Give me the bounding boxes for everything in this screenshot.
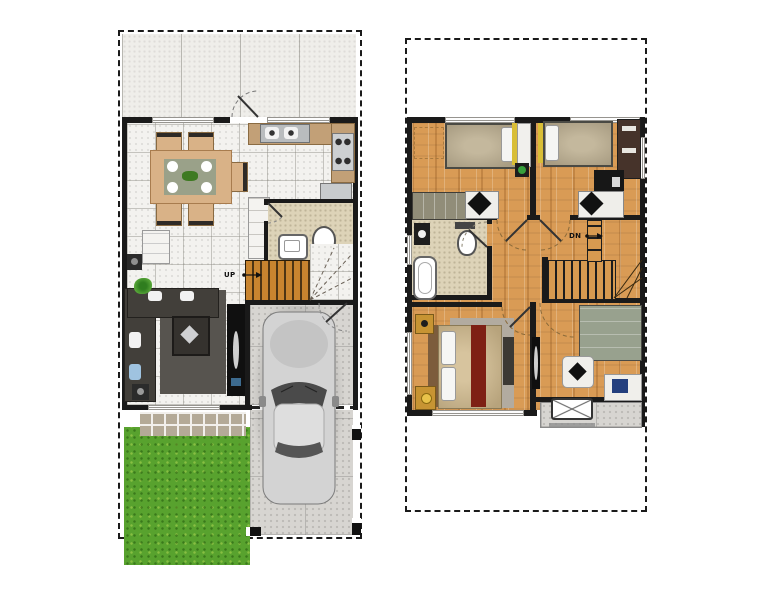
family-desk xyxy=(604,374,642,401)
speaker-bedroom1 xyxy=(515,163,529,177)
window-top-dining xyxy=(152,117,214,123)
wardrobe-shelf-2 xyxy=(622,148,636,153)
bath-wall-left-b xyxy=(264,221,268,264)
plate-3 xyxy=(167,182,178,193)
coffee-table xyxy=(172,316,210,356)
toilet2-tank xyxy=(455,222,475,229)
bed1-side-shelf xyxy=(517,123,531,167)
stove-cooktop xyxy=(332,133,354,171)
closet-outline xyxy=(414,127,444,159)
bath-sink-basin xyxy=(284,240,300,252)
plate-1 xyxy=(167,161,178,172)
tv-screen xyxy=(233,331,239,369)
tv-console-item xyxy=(231,378,241,386)
speaker xyxy=(132,384,149,400)
stairs-up-label: UP xyxy=(224,271,235,279)
plate-4 xyxy=(201,182,212,193)
wall-hall-master xyxy=(412,302,502,307)
ac-caption xyxy=(549,423,595,427)
bathtub-inner xyxy=(418,262,432,294)
dresser-bedroom1 xyxy=(412,192,467,220)
master-tv-screen xyxy=(534,346,538,380)
stair-winder-area xyxy=(310,244,353,300)
family-chair xyxy=(562,356,594,388)
nightstand-2-lamp xyxy=(421,393,432,404)
ac-unit xyxy=(551,398,593,420)
sofa-pillow-3 xyxy=(129,332,141,348)
plate-2 xyxy=(201,161,212,172)
master-bed-runner xyxy=(471,325,486,407)
floor-plan-canvas: UP xyxy=(0,0,761,590)
console-shelf xyxy=(142,230,170,264)
cabinet-bedroom2-item xyxy=(612,177,620,187)
potted-plant xyxy=(134,278,152,294)
window-master-left xyxy=(407,332,412,395)
laptop xyxy=(612,379,628,393)
paver-walkway xyxy=(140,412,246,436)
master-tv-console xyxy=(532,337,540,389)
speaker-cone xyxy=(137,388,144,395)
washer-door xyxy=(418,230,426,238)
stairs-down xyxy=(548,260,616,300)
toilet2-bowl xyxy=(457,230,477,256)
master-pillow-1 xyxy=(441,331,456,365)
gate-marker-1 xyxy=(352,425,361,440)
nightstand-2 xyxy=(415,386,436,410)
car-top-view xyxy=(259,310,339,508)
bathtub xyxy=(413,256,437,300)
sofa-pillow-1 xyxy=(148,291,162,301)
side-lamp-top xyxy=(131,258,138,265)
sofa-pillow-4 xyxy=(129,364,141,380)
service-yard xyxy=(122,34,356,117)
bath-wall-top xyxy=(264,199,353,203)
sofa-pillow-2 xyxy=(180,291,194,301)
centerpiece xyxy=(182,171,198,181)
ground-floor-plan: UP xyxy=(118,30,362,539)
bath2-wall-right-a xyxy=(487,220,492,224)
wall-bedrooms-bottom-b xyxy=(527,215,540,220)
stairwell-upper-flight xyxy=(587,220,602,262)
coffee-table-decor xyxy=(180,325,198,343)
window-bottom-living xyxy=(148,405,220,410)
window-master-bottom xyxy=(432,410,524,416)
lawn xyxy=(124,427,250,565)
bath-wall-left-a xyxy=(264,199,268,205)
bath2-wall-right-b xyxy=(487,246,492,300)
sink-bowl-left xyxy=(265,127,279,139)
nightstand-1-lamp xyxy=(421,320,428,327)
family-cabinet xyxy=(579,305,642,361)
dining-chair-4 xyxy=(188,202,214,226)
side-lamp xyxy=(127,254,142,270)
gate-marker-2 xyxy=(352,518,361,535)
speaker-bedroom1-cone xyxy=(518,166,526,174)
stairs-down-label: DN xyxy=(569,232,581,240)
bed2-pillow xyxy=(545,125,559,161)
master-pillow-2 xyxy=(441,367,456,401)
stairs-up xyxy=(245,260,312,302)
sink-bowl-right xyxy=(284,127,298,139)
dining-table xyxy=(150,150,232,204)
kitchen-sink-unit xyxy=(260,124,310,143)
nightstand-1 xyxy=(415,314,434,334)
family-chair-pad xyxy=(568,362,586,380)
washer xyxy=(414,223,430,245)
bath-sink xyxy=(278,234,308,260)
gate-marker-3 xyxy=(246,527,261,536)
second-floor-plan: DN xyxy=(405,38,647,512)
dining-chair-3 xyxy=(156,202,182,226)
wardrobe-shelf-1 xyxy=(622,126,636,131)
tv-console xyxy=(227,304,245,396)
master-bench xyxy=(503,337,514,385)
